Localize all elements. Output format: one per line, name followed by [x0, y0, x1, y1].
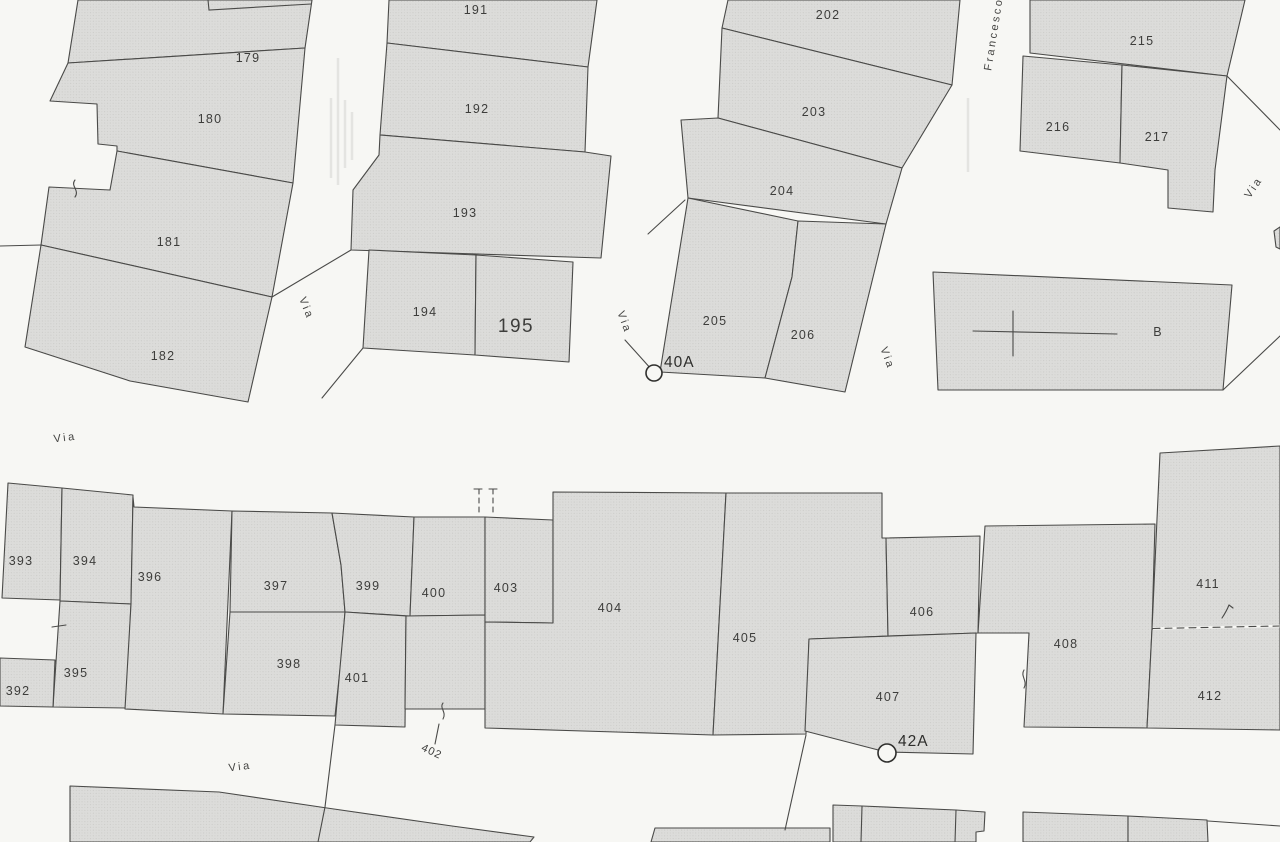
- parcel-408: [978, 524, 1155, 728]
- parcel-label-400: 400: [422, 586, 446, 600]
- parcel-sliver-right-edge: [1274, 227, 1280, 249]
- parcel-block-bottom-band: [0, 446, 1280, 754]
- cadastral-map-canvas: 179 180 181 182 191 192 193 194 195 202 …: [0, 0, 1280, 842]
- parcel-label-393: 393: [9, 554, 33, 568]
- parcel-412: [1147, 626, 1280, 730]
- parcel-label-405: 405: [733, 631, 757, 645]
- parcel-label-217: 217: [1145, 130, 1169, 144]
- parcel-block-top-middle: [272, 0, 611, 398]
- parcel-label-408: 408: [1054, 637, 1078, 651]
- parcel-411: [1152, 446, 1280, 629]
- parcel-label-399: 399: [356, 579, 380, 593]
- parcel-label-215: 215: [1130, 34, 1154, 48]
- leader-line-402: [435, 724, 439, 744]
- parcel-label-394: 394: [73, 554, 97, 568]
- parcel-label-406: 406: [910, 605, 934, 619]
- marker-circle-40A: [646, 365, 662, 381]
- parcel-label-396: 396: [138, 570, 162, 584]
- street-label-via-5: Via: [53, 431, 77, 446]
- parcel-block-top-left: [0, 0, 312, 402]
- parcel-label-193: 193: [453, 206, 477, 220]
- marker-circle-42A: [878, 744, 896, 762]
- parcel-label-181: 181: [157, 235, 181, 249]
- street-label-via-4: Via: [1242, 175, 1265, 201]
- address-label-40A: 40A: [664, 354, 695, 371]
- street-boundary-line: [0, 245, 41, 246]
- parcel-403: [485, 517, 553, 623]
- parcel-label-191: 191: [464, 3, 488, 17]
- street-boundary-line: [625, 340, 652, 370]
- parcel-bottom-right-1: [1023, 812, 1128, 842]
- parcel-label-404: 404: [598, 601, 622, 615]
- parcel-block-bottom-edge: [70, 725, 1280, 842]
- parcel-396: [125, 497, 232, 714]
- parcel-label-194: 194: [413, 305, 437, 319]
- parcel-label-195: 195: [498, 316, 534, 337]
- street-boundary-line: [1208, 821, 1280, 826]
- parcel-label-403: 403: [494, 581, 518, 595]
- parcel-400: [410, 517, 485, 616]
- parcel-406: [886, 536, 980, 636]
- street-label-via-3: Via: [877, 345, 896, 371]
- parcel-bottom-mid-high: [833, 805, 985, 842]
- squiggle-mark: [1023, 670, 1025, 688]
- parcel-216: [1020, 56, 1122, 163]
- parcel-193: [351, 135, 611, 258]
- parcel-label-179: 179: [236, 51, 260, 65]
- parcel-bottom-right-2: [1128, 816, 1208, 842]
- parcel-label-401: 401: [345, 671, 369, 685]
- parcel-bottom-left: [70, 786, 534, 842]
- parcel-label-392: 392: [6, 684, 30, 698]
- parcel-194: [363, 250, 476, 355]
- street-label-via-6: Via: [228, 760, 252, 775]
- parcel-195: [475, 255, 573, 362]
- parcel-label-180: 180: [198, 112, 222, 126]
- parcel-bottom-mid-low: [651, 828, 830, 842]
- parcel-label-402: 402: [419, 742, 443, 762]
- street-label-via-1: Via: [296, 295, 316, 321]
- parcel-393: [2, 483, 62, 600]
- parcel-label-182: 182: [151, 349, 175, 363]
- cadastral-map-page: 179 180 181 182 191 192 193 194 195 202 …: [0, 0, 1280, 842]
- parcel-392: [0, 658, 55, 707]
- parcel-217: [1120, 65, 1227, 212]
- parcel-label-206: 206: [791, 328, 815, 342]
- parcel-label-B: B: [1153, 325, 1163, 339]
- street-boundary-line: [322, 348, 363, 398]
- parcel-label-407: 407: [876, 690, 900, 704]
- parcel-399: [332, 513, 414, 616]
- parcel-label-216: 216: [1046, 120, 1070, 134]
- parcel-400-annex: [405, 615, 485, 709]
- parcel-label-398: 398: [277, 657, 301, 671]
- parcel-label-412: 412: [1198, 689, 1222, 703]
- parcel-label-203: 203: [802, 105, 826, 119]
- street-boundary-line: [1227, 76, 1280, 130]
- parcel-401: [335, 612, 406, 727]
- parcel-label-395: 395: [64, 666, 88, 680]
- street-boundary-line: [272, 250, 351, 297]
- parcel-label-192: 192: [465, 102, 489, 116]
- parcel-label-202: 202: [816, 8, 840, 22]
- street-label-via-2: Via: [614, 309, 633, 335]
- parcel-label-397: 397: [264, 579, 288, 593]
- street-label-francesco: Francesco: [982, 0, 1005, 72]
- street-crossing-line: [785, 735, 806, 830]
- street-boundary-line: [1223, 336, 1280, 390]
- parcel-397: [230, 511, 345, 612]
- dashed-survey-marker: [474, 489, 497, 513]
- parcel-395: [53, 601, 131, 708]
- parcel-label-205: 205: [703, 314, 727, 328]
- street-boundary-line: [648, 200, 685, 234]
- parcel-label-204: 204: [770, 184, 794, 198]
- parcel-394: [60, 488, 133, 604]
- address-label-42A: 42A: [898, 733, 929, 750]
- parcel-label-411: 411: [1196, 577, 1220, 591]
